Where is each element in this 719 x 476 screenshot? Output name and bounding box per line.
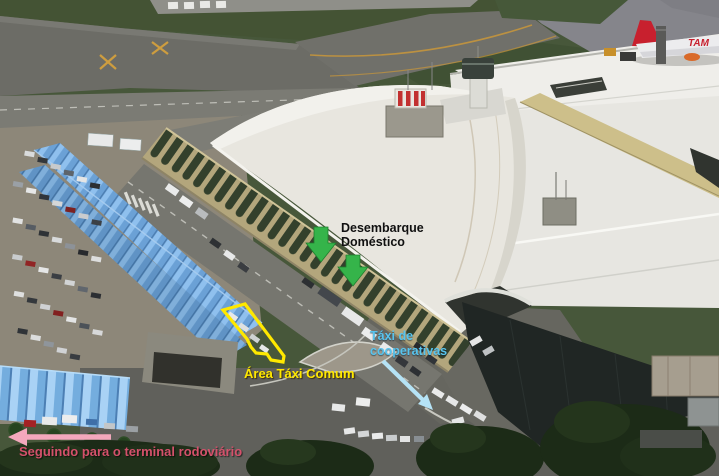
label-desembarque-domestico: Desembarque Doméstico bbox=[341, 221, 424, 249]
down-arrow-icon bbox=[306, 227, 336, 262]
label-line: cooperativas bbox=[370, 344, 447, 359]
coop-taxi-arrow bbox=[383, 361, 433, 410]
label-line: Táxi de bbox=[370, 329, 447, 344]
label-line: Doméstico bbox=[341, 235, 424, 249]
down-arrow-icon bbox=[338, 255, 368, 286]
common-taxi-outline bbox=[223, 304, 284, 362]
annotated-aerial-photo: TAM bbox=[0, 0, 719, 476]
label-line: Desembarque bbox=[341, 221, 424, 235]
label-area-taxi-comum: Área Táxi Comum bbox=[244, 366, 355, 381]
label-taxi-cooperativas: Táxi de cooperativas bbox=[370, 329, 447, 359]
label-terminal-rodoviario: Seguindo para o terminal rodoviário bbox=[19, 444, 242, 459]
